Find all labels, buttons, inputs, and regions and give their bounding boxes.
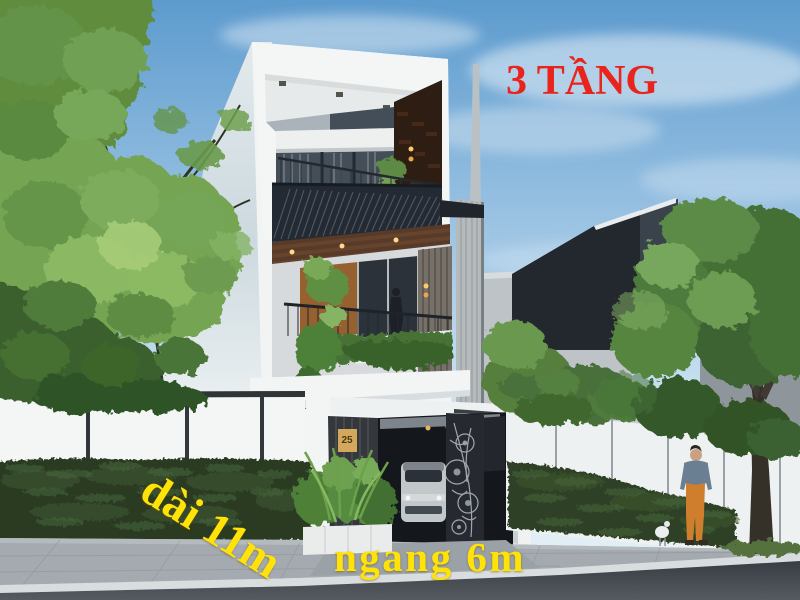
svg-text:25: 25 bbox=[341, 435, 353, 446]
